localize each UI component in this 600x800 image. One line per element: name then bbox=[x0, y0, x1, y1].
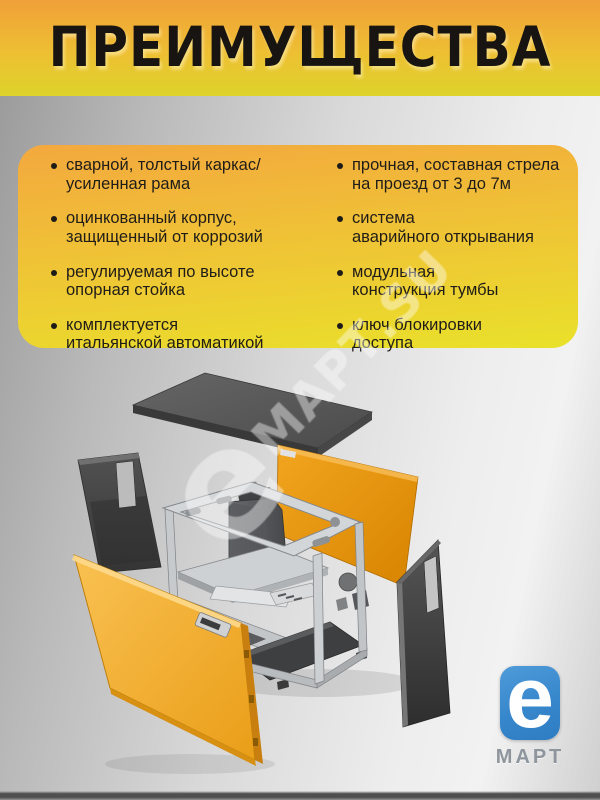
advantage-text: сварной, толстый каркас/ усиленная рама bbox=[66, 156, 261, 193]
bullet-dot-icon bbox=[51, 323, 57, 329]
bullet-dot-icon bbox=[337, 216, 343, 222]
list-item: регулируемая по высоте опорная стойка bbox=[51, 263, 323, 300]
list-item: модульная конструкция тумбы bbox=[337, 263, 569, 300]
list-item: оцинкованный корпус, защищенный от корро… bbox=[51, 209, 323, 246]
emart-logo: e МАРТ bbox=[492, 666, 568, 769]
bullet-dot-icon bbox=[337, 323, 343, 329]
advantages-card: сварной, толстый каркас/ усиленная рама … bbox=[18, 145, 578, 348]
list-item: система аварийного открывания bbox=[337, 209, 569, 246]
advantages-column-left: сварной, толстый каркас/ усиленная рама … bbox=[51, 156, 323, 369]
advantage-text: оцинкованный корпус, защищенный от корро… bbox=[66, 209, 263, 246]
bullet-dot-icon bbox=[337, 270, 343, 276]
list-item: комплектуется итальянской автоматикой bbox=[51, 316, 323, 353]
advantage-text: система аварийного открывания bbox=[352, 209, 534, 246]
page-title: ПРЕИМУЩЕСТВА bbox=[0, 0, 600, 79]
bottom-divider bbox=[0, 791, 600, 800]
advantage-text: регулируемая по высоте опорная стойка bbox=[66, 263, 255, 300]
bullet-dot-icon bbox=[51, 163, 57, 169]
bullet-dot-icon bbox=[51, 216, 57, 222]
logo-letter: e bbox=[506, 668, 554, 738]
header-banner: ПРЕИМУЩЕСТВА bbox=[0, 0, 600, 96]
top-cover bbox=[133, 373, 372, 457]
list-item: прочная, составная стрела на проезд от 3… bbox=[337, 156, 569, 193]
advantage-text: ключ блокировки доступа bbox=[352, 316, 482, 353]
list-item: сварной, толстый каркас/ усиленная рама bbox=[51, 156, 323, 193]
list-item: ключ блокировки доступа bbox=[337, 316, 569, 353]
poster: ПРЕИМУЩЕСТВА сварной, толстый каркас/ ус… bbox=[0, 0, 600, 800]
advantage-text: модульная конструкция тумбы bbox=[352, 263, 498, 300]
advantages-column-right: прочная, составная стрела на проезд от 3… bbox=[337, 156, 569, 369]
emart-logo-icon: e bbox=[500, 666, 560, 740]
advantage-text: комплектуется итальянской автоматикой bbox=[66, 316, 264, 353]
exploded-view-diagram bbox=[30, 350, 480, 780]
logo-brand-name: МАРТ bbox=[492, 746, 568, 769]
advantage-text: прочная, составная стрела на проезд от 3… bbox=[352, 156, 559, 193]
bullet-dot-icon bbox=[337, 163, 343, 169]
panel-slot bbox=[116, 461, 136, 508]
bullet-dot-icon bbox=[51, 270, 57, 276]
left-rear-panel bbox=[78, 453, 161, 573]
